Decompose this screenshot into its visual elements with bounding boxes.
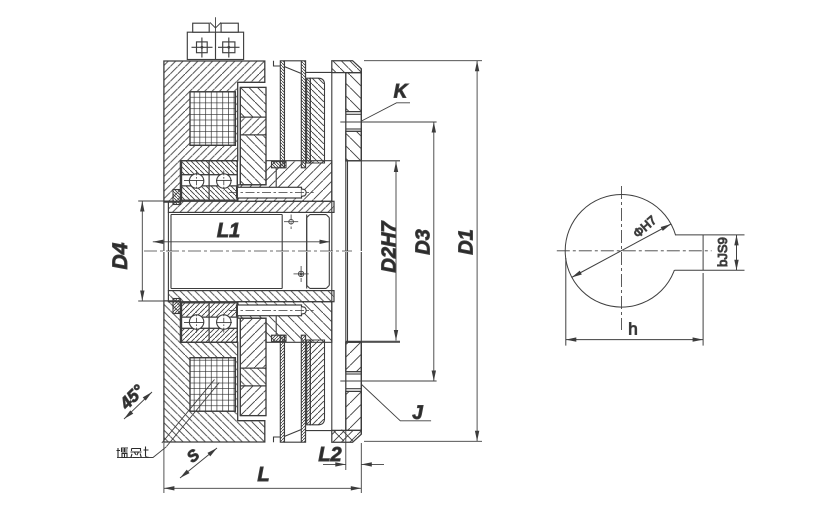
svg-text:D3: D3 <box>413 229 435 255</box>
svg-text:J: J <box>412 403 423 424</box>
svg-text:L2: L2 <box>318 444 341 466</box>
svg-text:45°: 45° <box>116 381 148 413</box>
svg-text:h: h <box>628 320 637 339</box>
svg-text:ΦH7: ΦH7 <box>630 213 659 241</box>
svg-text:K: K <box>394 82 409 103</box>
svg-text:bJS9: bJS9 <box>715 237 730 267</box>
svg-text:L: L <box>257 464 269 486</box>
svg-text:S: S <box>184 446 203 466</box>
svg-text:D2H7: D2H7 <box>379 221 401 273</box>
svg-text:D1: D1 <box>456 229 478 255</box>
svg-text:L1: L1 <box>217 220 240 242</box>
svg-text:D4: D4 <box>109 242 132 269</box>
